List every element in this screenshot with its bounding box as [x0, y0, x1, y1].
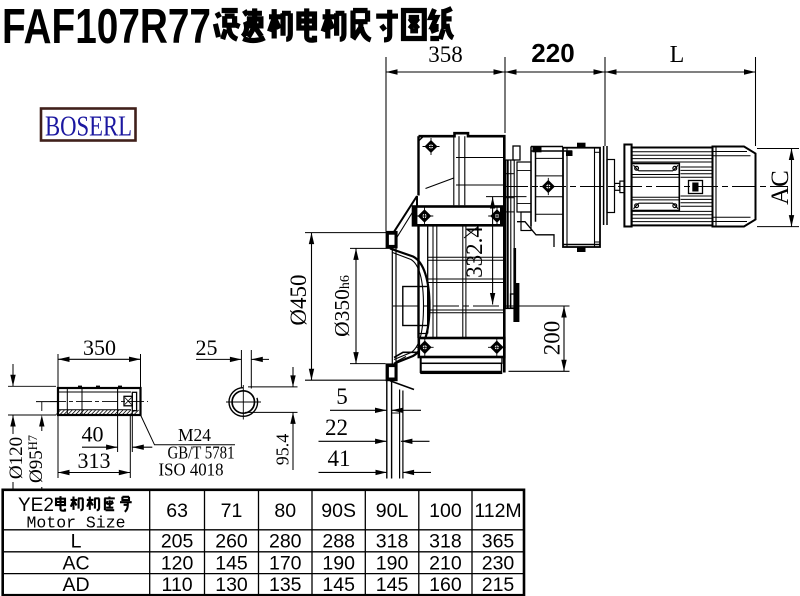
svg-text:220: 220 — [531, 38, 574, 68]
svg-text:95.4: 95.4 — [273, 434, 293, 466]
svg-text:AC: AC — [767, 170, 794, 205]
svg-text:L: L — [71, 531, 82, 553]
svg-text:190: 190 — [376, 553, 409, 575]
svg-text:135: 135 — [269, 574, 302, 596]
svg-text:145: 145 — [215, 553, 248, 575]
svg-text:120: 120 — [161, 553, 194, 575]
svg-text:318: 318 — [376, 531, 409, 553]
svg-text:280: 280 — [269, 531, 302, 553]
svg-text:160: 160 — [429, 574, 462, 596]
svg-text:AC: AC — [62, 553, 89, 575]
svg-text:215: 215 — [482, 574, 515, 596]
svg-text:130: 130 — [215, 574, 248, 596]
svg-text:358: 358 — [428, 42, 463, 67]
svg-text:40: 40 — [82, 422, 104, 447]
svg-text:22: 22 — [325, 415, 348, 440]
svg-text:Ø450: Ø450 — [286, 274, 311, 325]
svg-text:41: 41 — [328, 446, 351, 471]
svg-text:FAF107R77: FAF107R77 — [2, 0, 211, 54]
svg-text:205: 205 — [161, 531, 194, 553]
svg-text:110: 110 — [162, 574, 193, 596]
svg-text:BOSERL: BOSERL — [45, 111, 132, 143]
svg-text:Ø120: Ø120 — [6, 437, 27, 479]
svg-text:5: 5 — [336, 384, 348, 409]
svg-text:100: 100 — [429, 500, 462, 522]
svg-text:L: L — [670, 42, 685, 68]
svg-text:AD: AD — [62, 574, 89, 596]
svg-text:260: 260 — [215, 531, 248, 553]
svg-text:210: 210 — [429, 553, 462, 575]
svg-text:190: 190 — [322, 553, 355, 575]
svg-text:63: 63 — [166, 500, 188, 522]
svg-text:80: 80 — [274, 500, 296, 522]
svg-text:90L: 90L — [376, 500, 409, 522]
svg-text:ISO 4018: ISO 4018 — [159, 460, 224, 480]
svg-text:288: 288 — [322, 531, 355, 553]
svg-text:112M: 112M — [474, 500, 521, 522]
svg-text:170: 170 — [269, 553, 302, 575]
svg-text:25: 25 — [196, 335, 218, 360]
svg-text:230: 230 — [482, 553, 515, 575]
svg-text:90S: 90S — [321, 500, 356, 522]
svg-text:145: 145 — [376, 574, 409, 596]
svg-text:332.4: 332.4 — [462, 226, 487, 278]
svg-text:200: 200 — [540, 321, 565, 356]
svg-text:318: 318 — [429, 531, 462, 553]
svg-text:350: 350 — [83, 335, 116, 360]
svg-text:145: 145 — [322, 574, 355, 596]
svg-text:71: 71 — [221, 500, 243, 522]
svg-text:365: 365 — [482, 531, 515, 553]
svg-text:313: 313 — [78, 448, 111, 473]
